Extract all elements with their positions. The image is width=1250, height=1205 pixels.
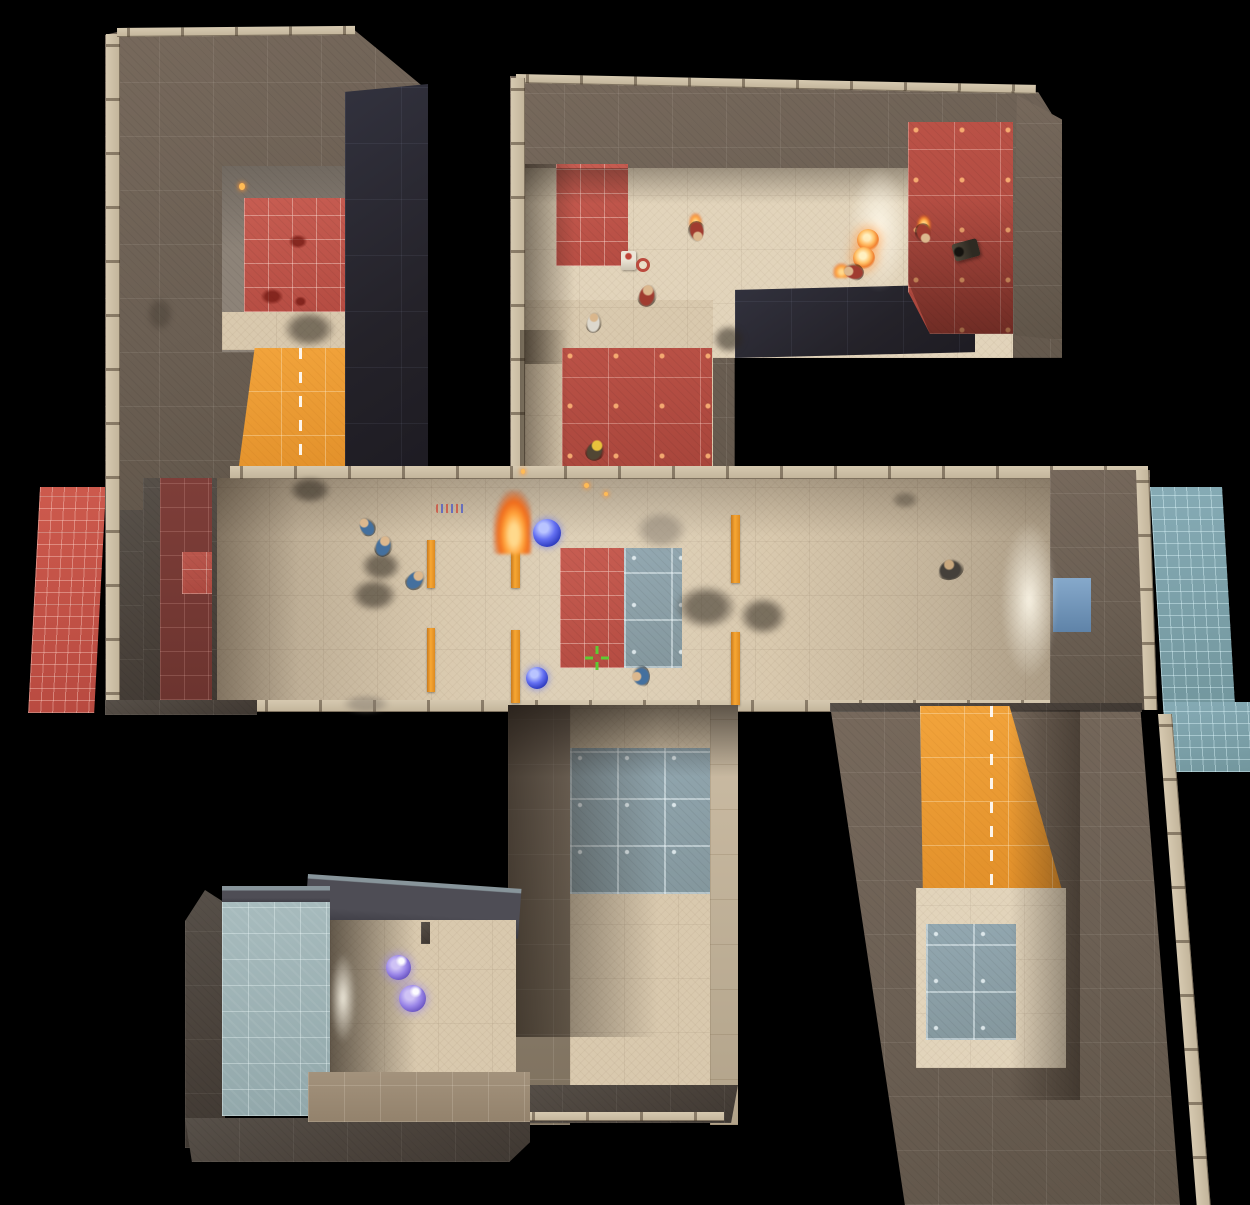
ext-pad-blue-right (1150, 487, 1235, 712)
blue-orb-projectile-1 (533, 519, 561, 547)
corridor-east-glow (1000, 520, 1058, 680)
blood-decal-2 (260, 288, 284, 305)
ext-pad-red-left (28, 487, 106, 713)
door-pillar-a-lower (427, 628, 435, 692)
bottommid-bottom-tick (522, 1112, 724, 1121)
topright-shade-left-leg (520, 330, 568, 470)
topleft-orange-ramp (237, 348, 363, 480)
ext-pad-blue-right-lower (1163, 702, 1250, 772)
bottomleft-bottom-wall (185, 1118, 530, 1162)
corridor-top-tick (230, 466, 1148, 479)
door-pillar-c-upper (731, 515, 740, 583)
blood-decal-3 (294, 296, 307, 307)
navy-corner-smoke (712, 324, 746, 354)
door-pillar-c-lower (731, 632, 740, 705)
corridor-east-blue-door (1053, 578, 1091, 632)
fire-ember-3 (521, 469, 525, 474)
corridor-smoke-2 (350, 578, 398, 612)
hud-crosshair (585, 646, 609, 670)
dropped-item-ring (636, 258, 650, 272)
topleft-ramp-smoke (288, 476, 332, 504)
purple-orb-projectile-2 (399, 985, 426, 1012)
blue-orb-projectile-2 (526, 667, 548, 689)
bottomright-right-shade (1010, 710, 1080, 1100)
topleft-navy-wall (345, 84, 428, 480)
corridor-smoke-4 (738, 596, 788, 636)
topleft-tick-west (106, 34, 120, 706)
player-blue-scout-2 (631, 665, 650, 688)
dispenser (621, 251, 636, 270)
corridor-smoke-3 (674, 584, 738, 630)
door-pillar-b-upper (511, 548, 520, 588)
purple-orb-projectile-1 (386, 955, 411, 980)
corridor-bottom-dark-left (105, 700, 257, 715)
door-pillar-a-upper (427, 540, 435, 588)
map-viewport[interactable] (0, 0, 1250, 1205)
corridor-dark-decal (891, 491, 919, 509)
fire-ember-1 (584, 483, 589, 488)
corridor-smoke-light-2 (341, 694, 391, 714)
door-pillar-b-lower (511, 630, 520, 703)
fire-ember-2 (604, 492, 608, 496)
blood-decal-1 (288, 234, 308, 249)
bottomleft-door-glow (330, 952, 356, 1044)
corridor-gib-decal (436, 504, 466, 513)
bottomleft-tile-floor (308, 1072, 530, 1122)
pillar-fire-flame (493, 490, 531, 554)
topright-side-wall (1013, 95, 1062, 340)
corridor-west-red-patch (182, 552, 212, 594)
topleft-ember-spark (239, 183, 245, 190)
corridor-smoke-light-1 (634, 510, 688, 550)
wall-scorch-decal (146, 296, 174, 332)
bottomright-slate-square (926, 924, 1016, 1040)
topleft-room-smoke (282, 310, 336, 348)
bottomleft-left-wall (185, 890, 225, 1148)
bottommid-left-shade (508, 705, 658, 1037)
bottomleft-wall-stub (421, 922, 430, 944)
